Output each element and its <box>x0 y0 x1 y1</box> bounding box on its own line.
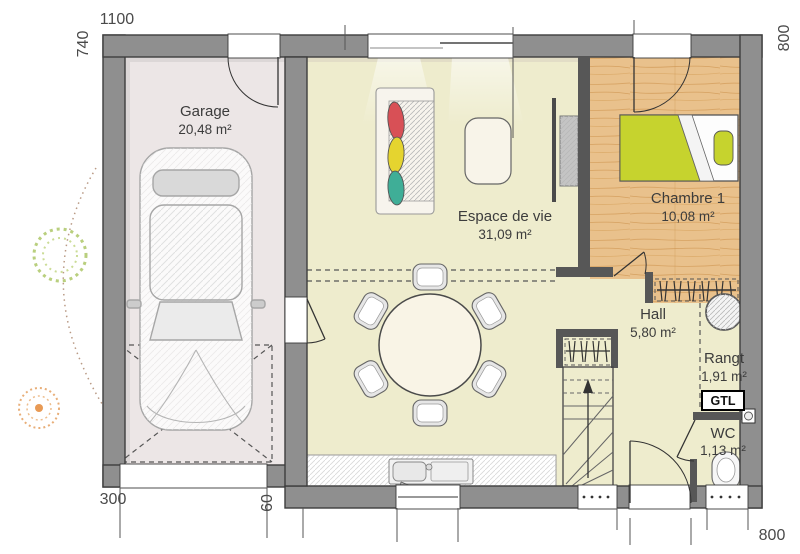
entrance-door-opening <box>629 485 690 509</box>
coffee-table <box>465 118 511 184</box>
garage-area: 20,48 m² <box>178 122 232 137</box>
dim-left-height: 740 <box>75 31 92 58</box>
dining-chair <box>413 400 447 426</box>
right-wall <box>740 35 762 508</box>
floor-plan-canvas: GTL Garage 20,48 m² Espace de vie 31,09 … <box>0 0 800 554</box>
bedroom-label: Chambre 1 <box>651 190 725 207</box>
dining-chair <box>413 264 447 290</box>
garage-living-door-opening <box>285 297 307 343</box>
bedroom-area: 10,08 m² <box>661 209 715 224</box>
wc-label: WC <box>711 425 736 442</box>
stair-closet-top-wall <box>556 329 618 337</box>
water-heater <box>706 294 742 330</box>
bed-pillow <box>714 131 733 165</box>
car-roof <box>150 205 242 300</box>
faucet-icon <box>426 464 432 470</box>
dining-table <box>379 294 481 396</box>
car-windshield <box>150 302 242 340</box>
sofa <box>376 88 434 214</box>
tree-icon <box>19 388 59 428</box>
living-area: 31,09 m² <box>478 227 532 242</box>
gtl-badge: GTL <box>702 391 744 410</box>
storage-area: 1,91 m² <box>701 369 747 384</box>
wc-area: 1,13 m² <box>700 443 746 458</box>
car <box>127 148 265 430</box>
dim-garage-door: 300 <box>100 491 127 508</box>
living-hall-wall-stub <box>556 267 613 277</box>
garage-service-door-opening <box>228 34 280 58</box>
bed <box>620 115 738 181</box>
gtl-fixture <box>742 409 755 423</box>
wall-inner-band <box>125 57 130 465</box>
dim-offset: 60 <box>259 494 276 512</box>
gtl-label: GTL <box>711 394 736 408</box>
bay-window <box>368 34 513 58</box>
garage-door-opening <box>120 464 267 488</box>
dim-bottom-right: 800 <box>759 527 786 544</box>
garage-house-shared-wall <box>285 57 307 486</box>
car-rear-window <box>153 170 239 196</box>
garage-label: Garage <box>180 103 230 120</box>
stair-closet-left-wall <box>556 329 563 368</box>
dim-right-height: 800 <box>776 25 793 52</box>
stair-closet-right-wall <box>611 329 618 368</box>
storage-label: Rangt <box>704 350 745 367</box>
gtl-wall <box>693 412 742 420</box>
garage-left-wall <box>103 35 125 487</box>
floor-plan: GTL Garage 20,48 m² Espace de vie 31,09 … <box>0 0 800 554</box>
bedroom-french-door-opening <box>633 34 691 58</box>
living-label: Espace de vie <box>458 208 552 225</box>
hall-label: Hall <box>640 306 666 323</box>
car-mirror-right <box>251 300 265 308</box>
closet-wall-stub <box>645 272 653 303</box>
hall-area: 5,80 m² <box>630 325 676 340</box>
dim-top-width: 1100 <box>100 11 135 28</box>
tv-screen <box>552 98 556 202</box>
car-mirror-left <box>127 300 141 308</box>
bush-icon <box>34 229 86 281</box>
living-bedroom-wall <box>578 57 590 269</box>
